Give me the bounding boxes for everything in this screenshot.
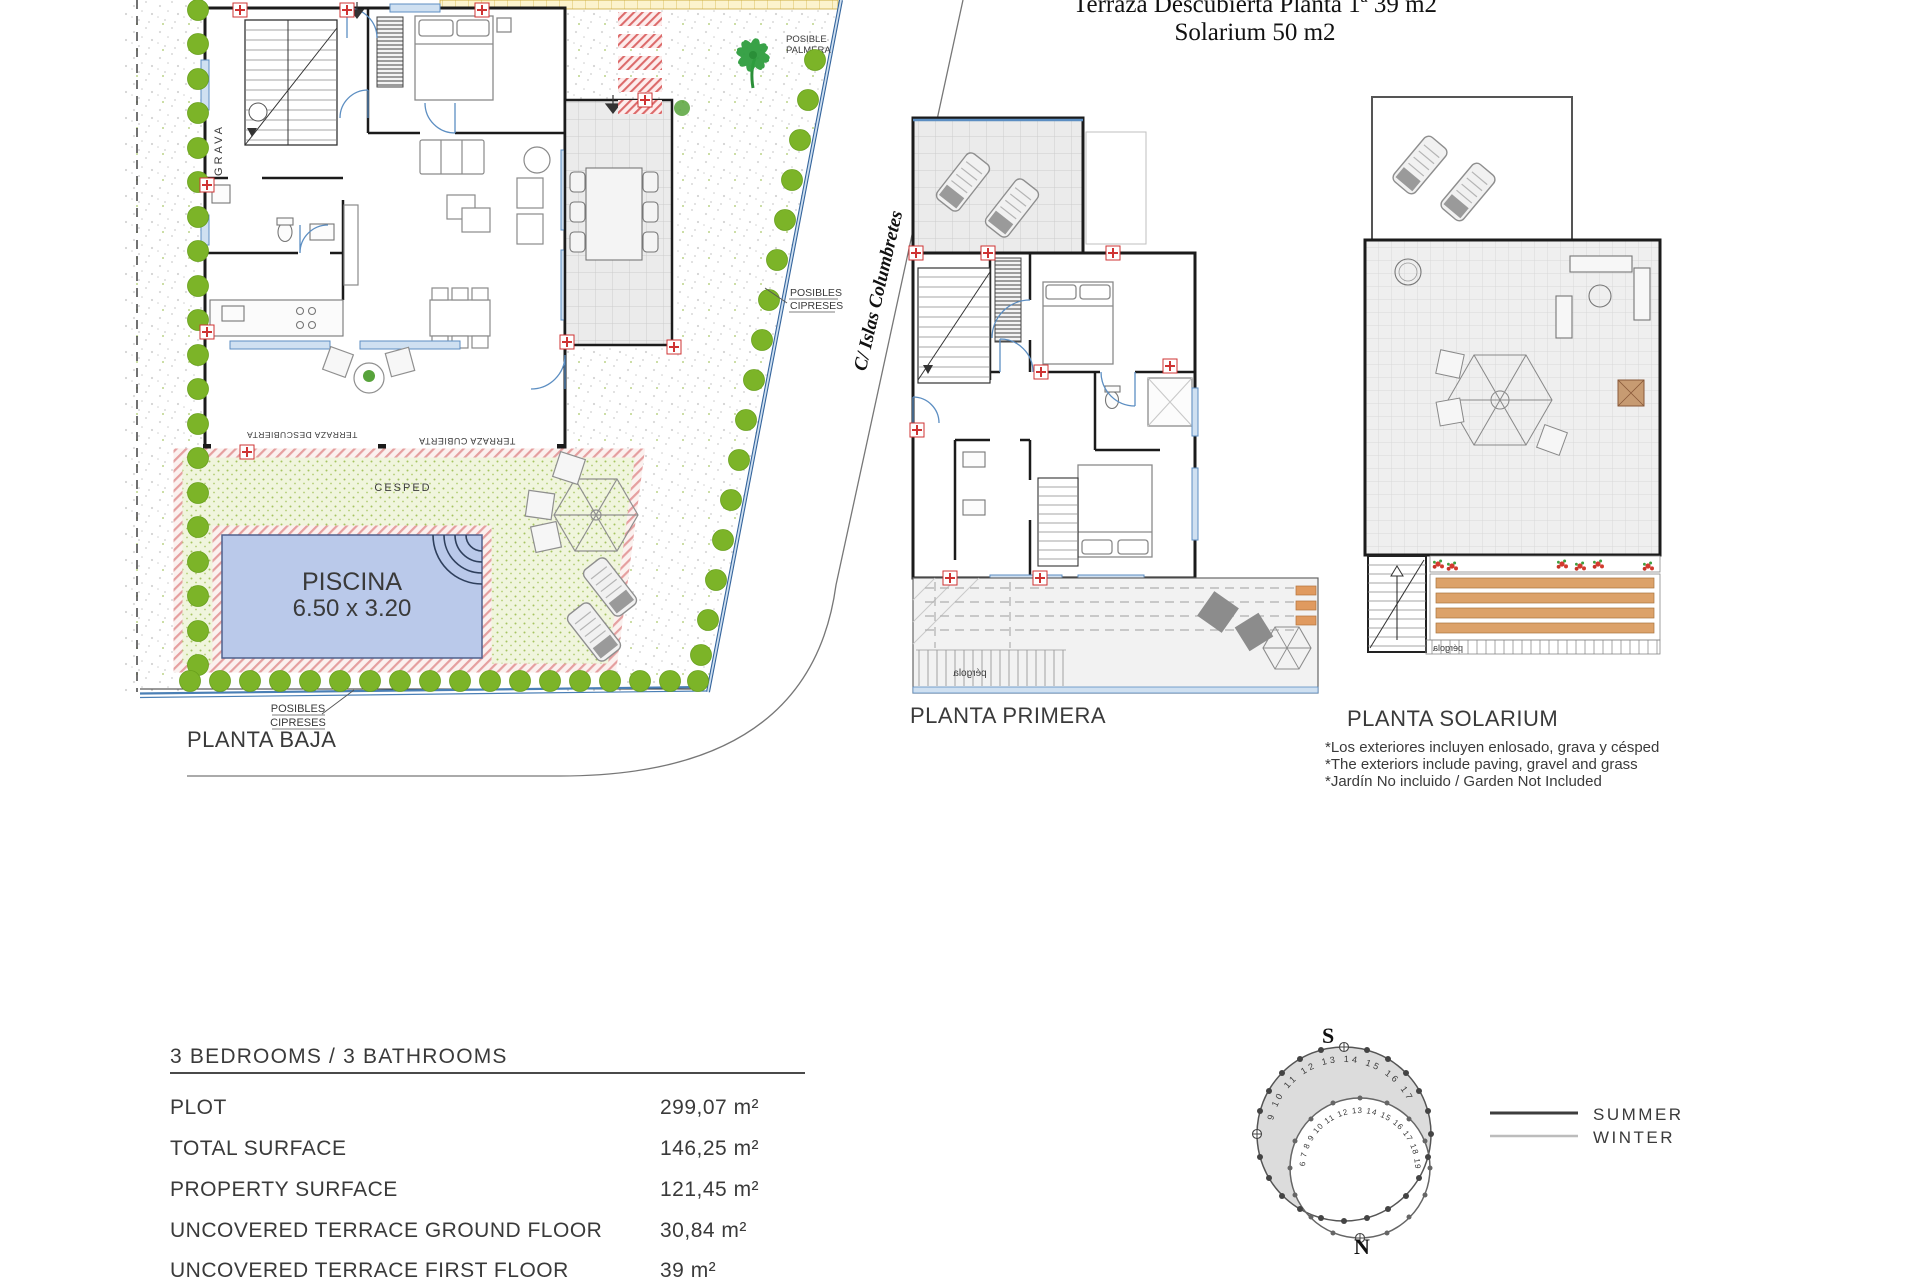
exterior-notes: *Los exteriores incluyen enlosado, grava… — [1325, 739, 1659, 790]
floor-plan-first: pérgola PLANTA PRIMERA — [909, 118, 1318, 728]
grava-label: GRAVA — [213, 124, 225, 176]
pool-dimensions: 6.50 x 3.20 — [293, 595, 412, 622]
summer-label: SUMMER — [1593, 1105, 1684, 1124]
svg-text:*The exteriors include paving,: *The exteriors include paving, gravel an… — [1325, 756, 1638, 773]
staircase-first-2 — [1038, 478, 1078, 566]
posible-palmera-label-1: POSIBLE — [786, 34, 827, 45]
spec-row-value: 121,45 m² — [660, 1178, 759, 1201]
floor-plan-sheet: Terraza Descubierta Planta 1ª 39 m2 Sola… — [0, 0, 1920, 1280]
staircase-solarium — [1368, 556, 1426, 652]
sun-legend: SUMMER WINTER — [1490, 1105, 1684, 1147]
pergola-mirrored-label-first: pérgola — [953, 668, 987, 679]
spec-row-label: UNCOVERED TERRACE GROUND FLOOR — [170, 1219, 602, 1242]
spec-row-value: 39 m² — [660, 1259, 716, 1280]
header-line1: Terraza Descubierta Planta 1ª 39 m2 — [1073, 0, 1437, 18]
svg-text:POSIBLES: POSIBLES — [790, 287, 842, 299]
svg-text:CIPRESES: CIPRESES — [790, 300, 843, 312]
neighbor-ghost-outline — [1086, 132, 1146, 244]
spec-row-value: 146,25 m² — [660, 1137, 759, 1160]
brown-panel — [1618, 380, 1644, 406]
specs-title: 3 BEDROOMS / 3 BATHROOMS — [170, 1045, 508, 1068]
north-label: N — [1354, 1234, 1370, 1259]
south-label: S — [1322, 1023, 1334, 1048]
svg-text:*Jardín No incluido / Garden N: *Jardín No incluido / Garden Not Include… — [1325, 773, 1602, 790]
spec-row-label: PROPERTY SURFACE — [170, 1178, 398, 1201]
spec-row-label: UNCOVERED TERRACE FIRST FLOOR — [170, 1259, 569, 1280]
kitchen — [210, 300, 343, 336]
dining-set — [570, 168, 658, 260]
pergola-mirrored-label-solarium: pérgola — [1433, 643, 1463, 653]
bed-first-2 — [1078, 465, 1152, 557]
wardrobe — [377, 17, 403, 87]
specs-table: 3 BEDROOMS / 3 BATHROOMS PLOT 299,07 m² … — [170, 1045, 805, 1280]
winter-label: WINTER — [1593, 1128, 1675, 1147]
terraza-descubierta-label: TERRAZA DESCUBIERTA — [247, 430, 358, 440]
planta-primera-title: PLANTA PRIMERA — [910, 703, 1106, 728]
solarium-main — [1365, 240, 1660, 555]
staircase-first — [918, 268, 990, 383]
cesped-label: CESPED — [374, 482, 431, 494]
floor-plan-ground: TERRAZA DESCUBIERTA TERRAZA CUBIERTA — [125, 0, 963, 776]
shrub — [674, 100, 690, 116]
wardrobe-first — [995, 258, 1021, 342]
planta-solarium-title: PLANTA SOLARIUM — [1347, 706, 1558, 731]
floor-plan-solarium: pérgola PLANTA SOLARIUM *Los exteriores … — [1325, 97, 1660, 790]
spec-row-label: PLOT — [170, 1096, 227, 1119]
railing — [916, 650, 1066, 686]
svg-text:*Los exteriores incluyen enlos: *Los exteriores incluyen enlosado, grava… — [1325, 739, 1659, 756]
svg-text:POSIBLES: POSIBLES — [271, 703, 325, 715]
pool-label: PISCINA — [302, 568, 402, 596]
staircase — [245, 20, 337, 145]
spec-row-label: TOTAL SURFACE — [170, 1137, 346, 1160]
spec-row-value: 299,07 m² — [660, 1096, 759, 1119]
header-line2: Solarium 50 m2 — [1174, 19, 1335, 46]
planta-baja-title: PLANTA BAJA — [187, 727, 336, 752]
glass-balustrade — [913, 687, 1318, 693]
header: Terraza Descubierta Planta 1ª 39 m2 Sola… — [1073, 0, 1437, 46]
terraza-cubierta-label: TERRAZA CUBIERTA — [419, 436, 516, 446]
planter — [1430, 556, 1660, 572]
spec-row-value: 30,84 m² — [660, 1219, 747, 1242]
bed-first-1 — [1043, 282, 1113, 364]
street-name-label: C/ Islas Columbretes — [850, 209, 907, 373]
